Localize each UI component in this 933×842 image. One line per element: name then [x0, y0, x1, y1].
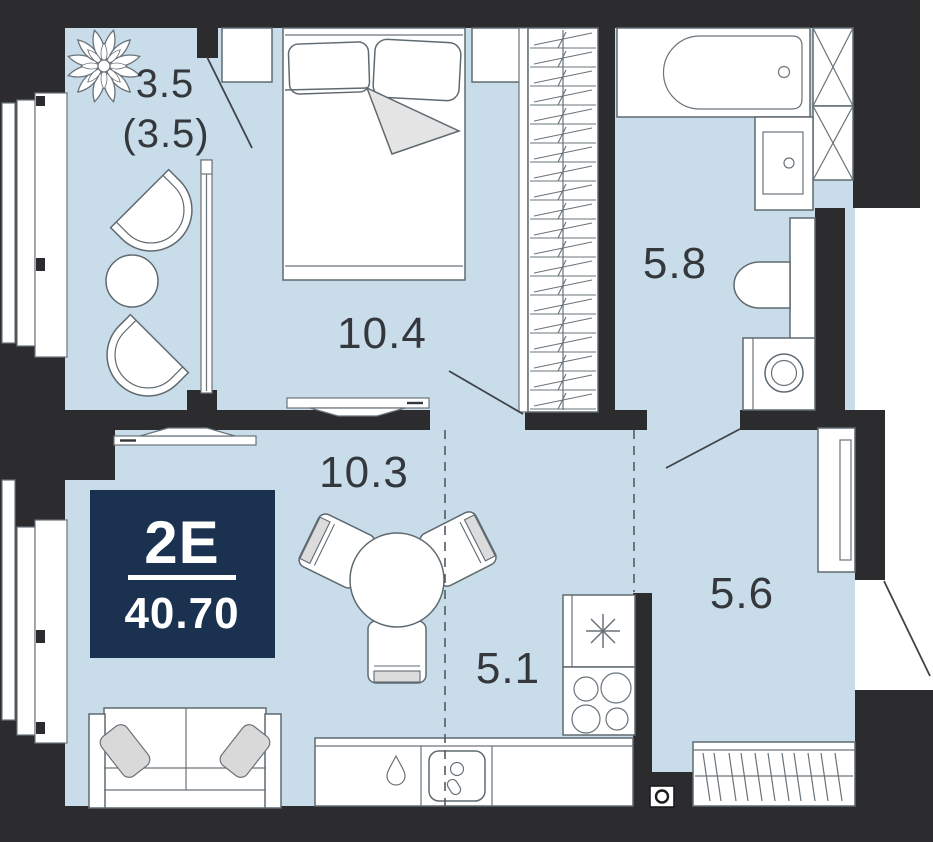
hallway-closet — [693, 742, 855, 806]
bathtub — [617, 28, 810, 117]
exterior-notch — [845, 208, 933, 412]
exterior-sliver — [920, 0, 933, 208]
utility-point — [650, 786, 674, 807]
bathroom-area-label: 5.8 — [643, 239, 707, 288]
wall-wardrobe-bottom — [525, 410, 647, 430]
floor-plan: 2Е 40.70 — [0, 0, 933, 842]
hallway-area-label: 5.6 — [710, 569, 774, 618]
hallway-cabinet — [818, 428, 855, 572]
balcony-sliding-door — [201, 160, 212, 393]
pillow — [288, 42, 370, 95]
balcony-area-reduced-label: (3.5) — [122, 112, 209, 156]
window-pane — [35, 93, 67, 357]
wall-top-right-block — [853, 0, 920, 208]
window-mullion — [36, 258, 45, 271]
window-balcony — [2, 93, 67, 357]
sofa — [89, 708, 281, 808]
wall-bottom-right-block — [855, 690, 933, 842]
window-living-room — [2, 480, 67, 743]
round-table — [350, 533, 444, 627]
window-mullion — [36, 630, 45, 643]
total-area-label: 40.70 — [124, 589, 239, 638]
wall-wardrobe-bathroom — [598, 28, 615, 412]
wall-bottom — [0, 806, 858, 842]
wall-balcony-stub — [197, 28, 218, 58]
fridge — [563, 595, 635, 667]
kitchen-area-label: 5.1 — [476, 644, 540, 693]
window-pane — [17, 100, 35, 346]
unit-type-label: 2Е — [144, 509, 219, 576]
wall-kitchen-column — [633, 593, 652, 806]
balcony-area-label: 3.5 — [136, 62, 195, 106]
wall-left-jog — [65, 410, 115, 480]
area-badge: 2Е 40.70 — [90, 490, 275, 658]
stove — [563, 667, 635, 735]
wardrobe — [519, 28, 598, 412]
double-bed — [283, 28, 465, 280]
balcony-table — [106, 255, 158, 307]
entrance-door-opening — [855, 578, 885, 692]
wall-bathroom-right — [815, 208, 845, 412]
window-mullion — [36, 722, 45, 734]
bathroom-sink — [755, 117, 813, 210]
window-mullion — [36, 96, 45, 106]
faucet — [451, 763, 464, 776]
badge-divider — [128, 575, 236, 580]
kitchen-sink — [429, 751, 485, 801]
washing-machine — [743, 338, 815, 410]
window-pane — [2, 103, 15, 343]
chair — [368, 621, 426, 683]
snowflake-icon — [586, 614, 620, 648]
vent-shaft — [813, 28, 853, 106]
window-pane — [2, 480, 15, 720]
nightstand — [472, 28, 520, 82]
kitchen-counter — [315, 738, 633, 806]
pillow — [373, 39, 462, 101]
drain — [779, 67, 790, 78]
bedroom-area-label: 10.4 — [337, 309, 427, 358]
wall-partition-post — [187, 390, 217, 430]
window-pane — [17, 527, 35, 735]
vent-shaft — [813, 106, 853, 180]
nightstand — [222, 28, 272, 82]
floor-plan-canvas: 2Е 40.70 — [0, 0, 933, 842]
exterior-entry-side — [883, 412, 933, 690]
wall-hallway-right — [855, 412, 885, 580]
living-room-area-label: 10.3 — [319, 448, 409, 497]
wall-top — [0, 0, 920, 28]
